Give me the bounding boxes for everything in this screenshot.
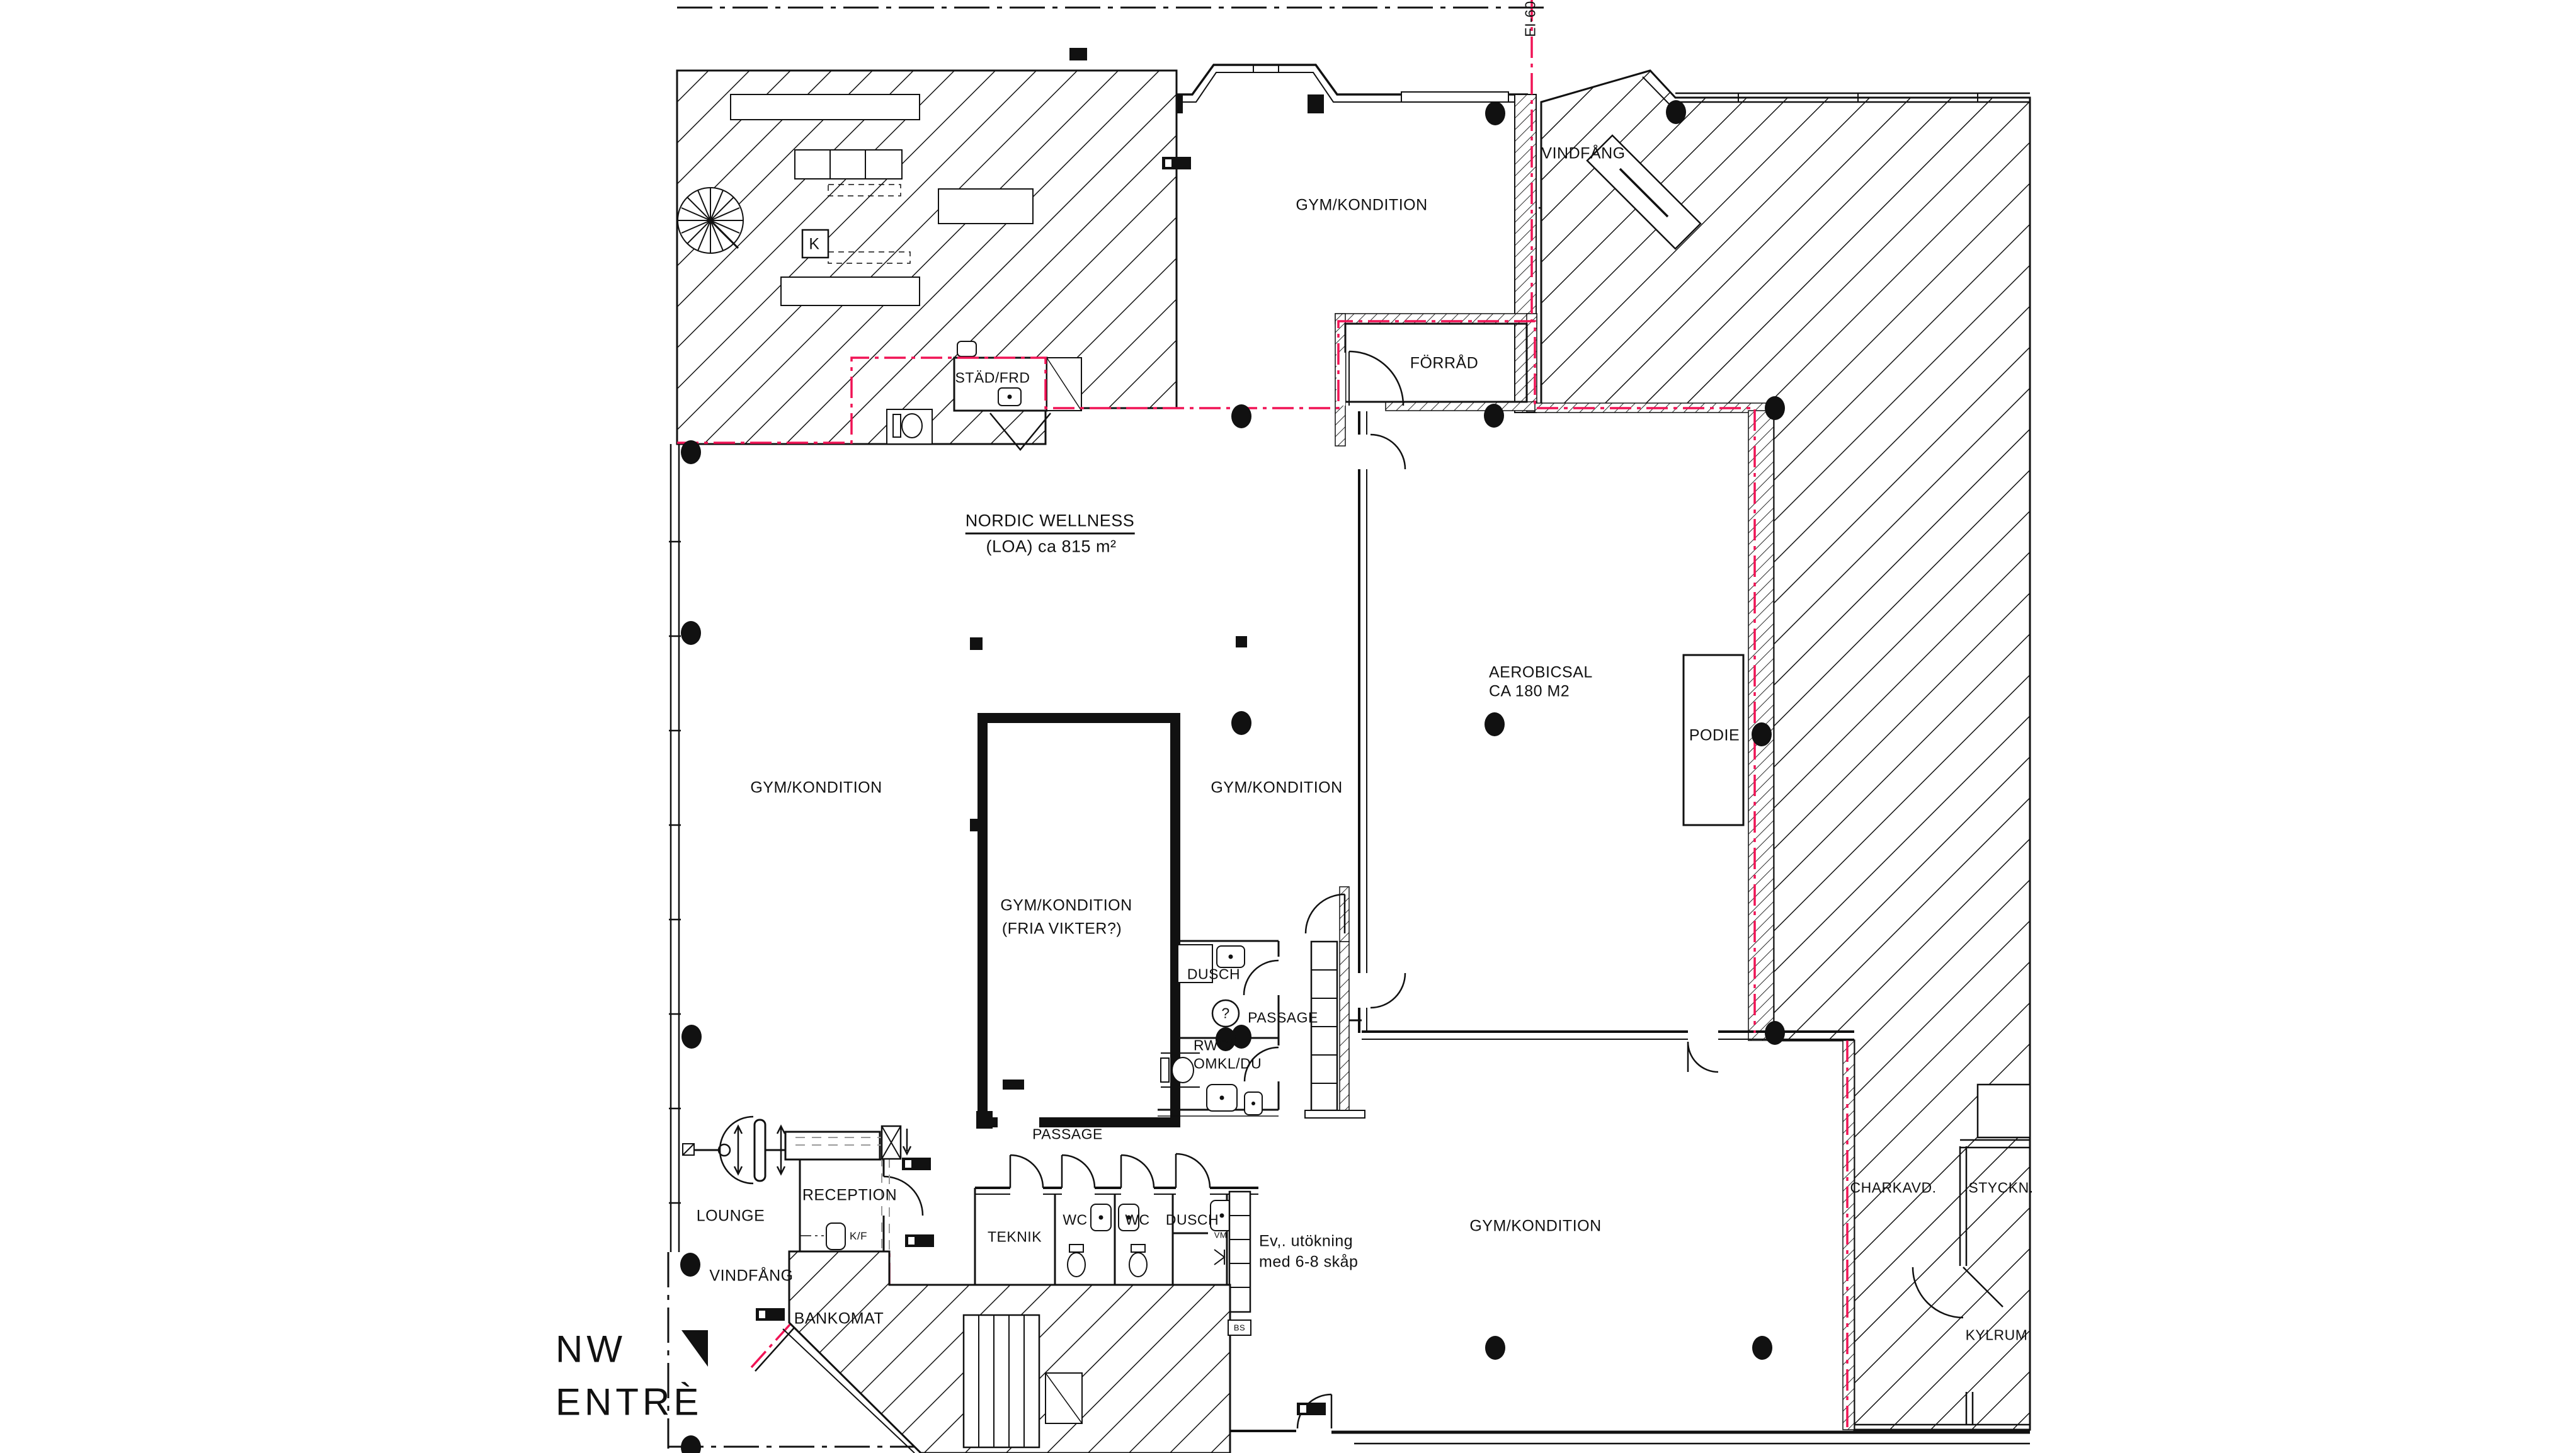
exit-sign [902,1158,931,1170]
corridor-door-arcs [1010,1154,1210,1188]
lounge-entrance [683,1117,785,1183]
toilet-icon [1068,1245,1147,1277]
wall-marker [970,637,983,650]
column-square [1308,94,1324,113]
exit-sign [1003,1080,1024,1090]
room-fria-vikter [970,636,1247,1129]
door-arc [1371,973,1405,1008]
floor-plan-drawing [0,0,2576,1453]
toilet-icon [902,414,922,438]
north-marker-triangle [681,1330,708,1367]
revolving-door-leaf [755,1120,765,1181]
reception-area [785,1126,923,1251]
shower-icon [1178,945,1212,983]
floor-plan-canvas: EI-60 VINDFÅNG GYM/KONDITION FÖRRÅD STÄD… [0,0,2576,1453]
left-glass-facade [669,444,681,1252]
room-forrad [1335,314,1537,446]
exit-sign [756,1308,785,1321]
neighbor-block-top-left [677,48,1177,450]
kf-cabinet [826,1223,845,1250]
door-arc [1349,351,1403,406]
podie-platform [1684,655,1743,825]
locker-column [1229,1192,1250,1312]
wall-marker [1236,636,1247,647]
arrow-symbol [1214,1250,1224,1265]
bs-box [1228,1320,1251,1335]
center-wet-cluster [1158,887,1365,1118]
door-arc [1306,894,1345,933]
exit-sign [905,1234,934,1247]
door-arc [1244,960,1279,995]
question-symbol [1212,1000,1239,1027]
down-arrow-icon [903,1129,911,1154]
wc-niche [887,409,932,444]
stair-icon [964,1315,1039,1447]
rwc-toilet-icon [1161,1053,1200,1087]
spiral-staircase-icon [678,188,743,253]
door-arc [1371,435,1405,469]
shaft-box [882,1126,911,1159]
locker-column [1305,942,1365,1118]
exit-sign [1162,157,1191,169]
exit-sign [1297,1403,1326,1415]
door-arc [1245,1047,1279,1081]
sink-icon [957,341,976,356]
neighbor-region-right [1304,71,2030,1444]
wall-marker [970,819,983,831]
door-arc [1688,1042,1718,1072]
gym-top-wall [1177,65,1575,413]
kitchen-equipment-box [802,230,828,258]
